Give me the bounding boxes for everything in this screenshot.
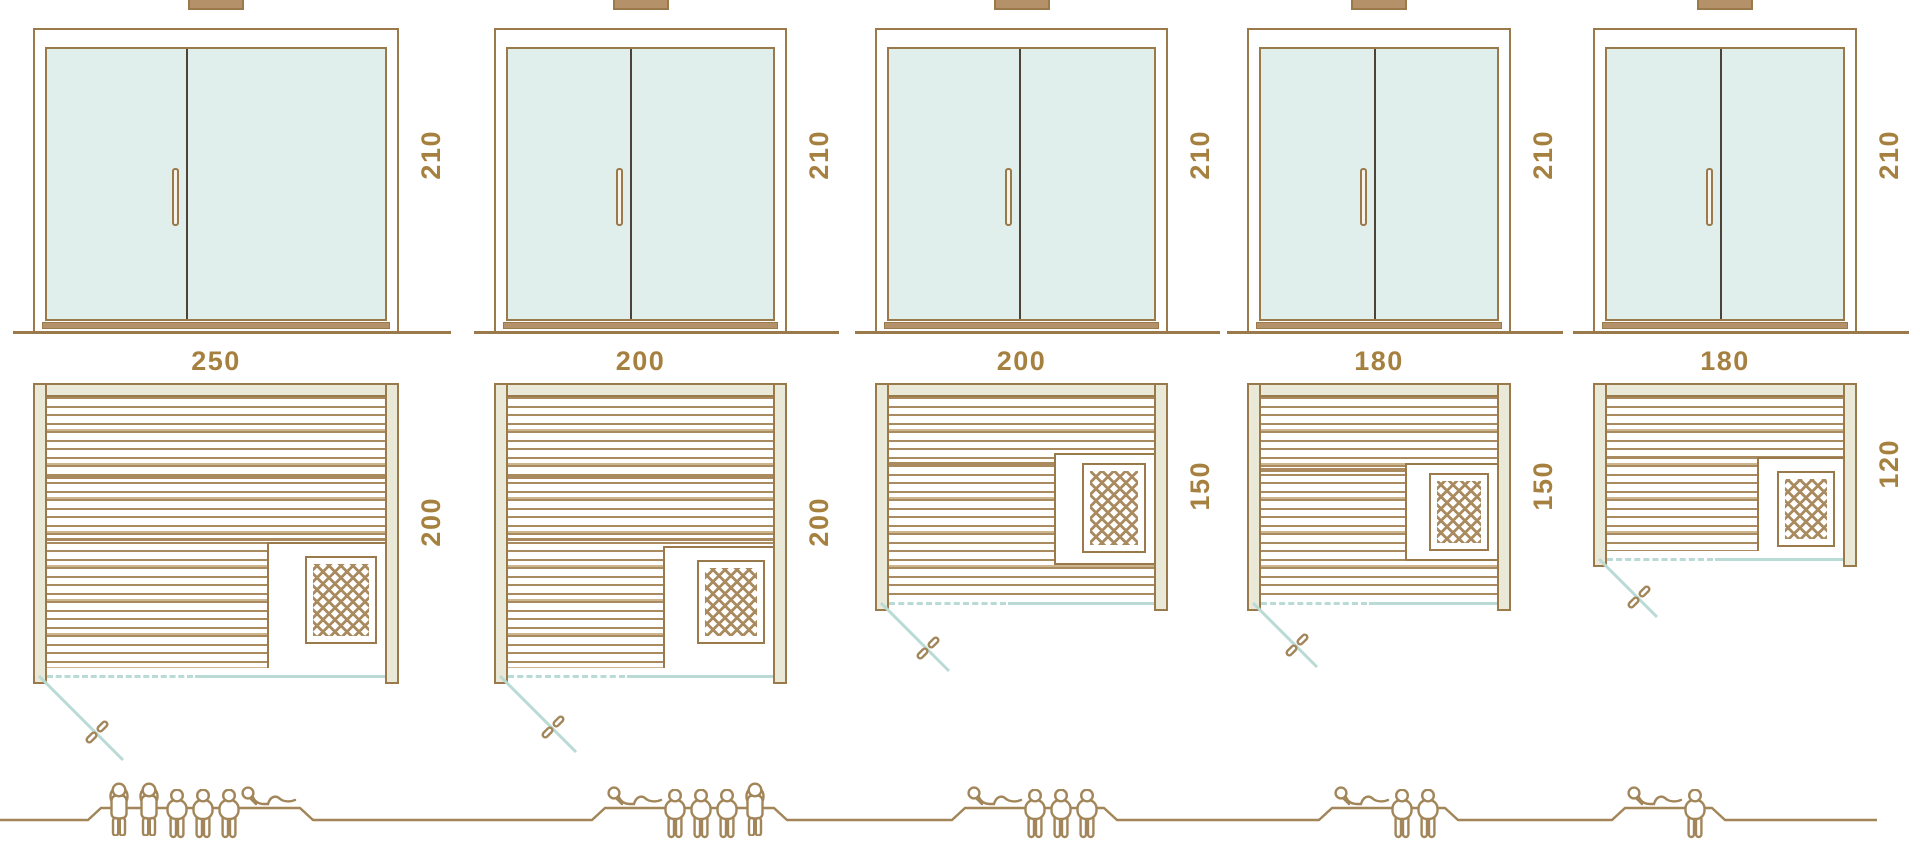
person-sitting-icon	[220, 790, 239, 837]
door-divider	[1019, 49, 1021, 319]
roof-vent	[1351, 0, 1407, 10]
heater-mesh	[1090, 471, 1138, 545]
plan-width-dimension: 180	[1593, 348, 1857, 375]
glass-front-line	[195, 675, 385, 678]
door-height-dimension: 210	[806, 130, 833, 180]
door-elevation	[494, 28, 787, 333]
person-lying-icon	[969, 788, 1021, 804]
door-elevation	[1593, 28, 1857, 333]
floor-plan	[33, 383, 399, 684]
ground-line	[13, 331, 451, 334]
person-sitting-icon	[1078, 790, 1097, 837]
person-sitting-icon	[718, 790, 737, 837]
glass-panels	[506, 47, 775, 321]
sauna-heater	[1429, 473, 1489, 551]
plan-width-dimension: 200	[494, 348, 787, 375]
door-handle	[1706, 168, 1713, 226]
plan-interior-benches	[889, 397, 1154, 595]
person-sitting-icon	[194, 790, 213, 837]
capacity-group-sauna-200x150	[969, 788, 1097, 837]
heater-mesh	[313, 564, 369, 636]
person-standing-icon	[111, 784, 128, 836]
door-handle	[1360, 168, 1367, 226]
ground-line	[1227, 331, 1563, 334]
sauna-unit-250x200: 210 250 200	[33, 0, 399, 856]
people-ground-line	[0, 808, 1877, 820]
plan-wall-top	[1593, 383, 1857, 397]
heater-mesh	[1785, 479, 1827, 539]
person-sitting-icon	[692, 790, 711, 837]
person-sitting-icon	[666, 790, 685, 837]
door-elevation	[33, 28, 399, 333]
sauna-unit-200x200: 210 200 200	[494, 0, 787, 856]
plan-interior-benches	[1607, 397, 1843, 551]
sauna-size-comparison-diagram: 210 250 200	[0, 0, 1920, 856]
ground-line	[1573, 331, 1909, 334]
plan-depth-dimension: 200	[806, 497, 833, 547]
door-height-dimension: 210	[1876, 130, 1903, 180]
plan-width-dimension: 180	[1247, 348, 1511, 375]
door-handle	[1005, 168, 1012, 226]
door-sill	[503, 322, 778, 329]
ground-line	[855, 331, 1220, 334]
plan-depth-dimension: 200	[418, 497, 445, 547]
plan-wall-right	[1497, 383, 1511, 611]
door-handle	[172, 168, 179, 226]
sauna-unit-180x150: 210 180 150	[1247, 0, 1511, 856]
plan-wall-left	[875, 383, 889, 611]
plan-depth-dimension: 150	[1530, 461, 1557, 511]
capacity-group-sauna-180x150	[1336, 788, 1438, 837]
door-elevation	[1247, 28, 1511, 333]
door-divider	[186, 49, 188, 319]
glass-panels	[1605, 47, 1845, 321]
roof-vent	[994, 0, 1050, 10]
door-sill	[42, 322, 390, 329]
person-sitting-icon	[1419, 790, 1438, 837]
sauna-heater	[305, 556, 377, 644]
plan-wall-top	[33, 383, 399, 397]
capacity-pictogram-row	[0, 760, 1920, 856]
sauna-heater	[1082, 463, 1146, 553]
person-standing-icon	[747, 784, 764, 836]
plan-depth-dimension: 120	[1876, 439, 1903, 489]
person-standing-icon	[141, 784, 158, 836]
floor-plan	[494, 383, 787, 684]
person-lying-icon	[243, 788, 295, 804]
floor-plan	[875, 383, 1168, 611]
plan-wall-right	[1843, 383, 1857, 567]
floor-plan	[1247, 383, 1511, 611]
plan-wall-top	[1247, 383, 1511, 397]
plan-wall-left	[1247, 383, 1261, 611]
door-divider	[1720, 49, 1722, 319]
bench-edge-line	[47, 476, 385, 480]
plan-wall-left	[494, 383, 508, 684]
sauna-unit-200x150: 210 200 150	[875, 0, 1168, 856]
sauna-heater	[697, 560, 765, 644]
roof-vent	[1697, 0, 1753, 10]
plan-wall-right	[385, 383, 399, 684]
plan-wall-left	[33, 383, 47, 684]
door-height-dimension: 210	[418, 130, 445, 180]
person-sitting-icon	[1052, 790, 1071, 837]
plan-interior-benches	[1261, 397, 1497, 595]
door-swing	[879, 601, 1039, 751]
plan-interior-benches	[508, 397, 773, 668]
heater-mesh	[705, 568, 757, 636]
glass-panels	[887, 47, 1156, 321]
person-sitting-icon	[1393, 790, 1412, 837]
person-lying-icon	[609, 788, 661, 804]
door-divider	[1374, 49, 1376, 319]
roof-vent	[188, 0, 244, 10]
plan-width-dimension: 200	[875, 348, 1168, 375]
sauna-heater	[1777, 471, 1835, 547]
capacity-group-sauna-180x120	[1629, 788, 1705, 837]
door-swing	[1251, 601, 1411, 751]
plan-interior-benches	[47, 397, 385, 668]
bench-edge-line	[47, 538, 385, 542]
person-sitting-icon	[1686, 790, 1705, 837]
door-height-dimension: 210	[1530, 130, 1557, 180]
person-sitting-icon	[168, 790, 187, 837]
capacity-group-sauna-200x200	[609, 784, 764, 837]
people-capacity-groups	[111, 784, 1705, 837]
glass-panels	[1259, 47, 1499, 321]
sauna-unit-180x120: 210 180 120	[1593, 0, 1857, 856]
door-handle	[616, 168, 623, 226]
ground-line	[474, 331, 839, 334]
plan-depth-dimension: 150	[1187, 461, 1214, 511]
roof-vent	[613, 0, 669, 10]
floor-plan	[1593, 383, 1857, 567]
plan-wall-right	[1154, 383, 1168, 611]
door-sill	[1602, 322, 1848, 329]
person-sitting-icon	[1026, 790, 1045, 837]
door-sill	[884, 322, 1159, 329]
plan-wall-right	[773, 383, 787, 684]
capacity-group-sauna-250x200	[111, 784, 295, 837]
door-divider	[630, 49, 632, 319]
heater-mesh	[1437, 481, 1481, 543]
door-elevation	[875, 28, 1168, 333]
plan-wall-top	[494, 383, 787, 397]
person-lying-icon	[1336, 788, 1388, 804]
door-swing	[1597, 557, 1757, 707]
glass-panels	[45, 47, 387, 321]
person-lying-icon	[1629, 788, 1681, 804]
plan-wall-left	[1593, 383, 1607, 567]
door-height-dimension: 210	[1187, 130, 1214, 180]
bench-edge-line	[508, 538, 773, 542]
door-sill	[1256, 322, 1502, 329]
plan-wall-top	[875, 383, 1168, 397]
bench-edge-line	[508, 476, 773, 480]
plan-width-dimension: 250	[33, 348, 399, 375]
